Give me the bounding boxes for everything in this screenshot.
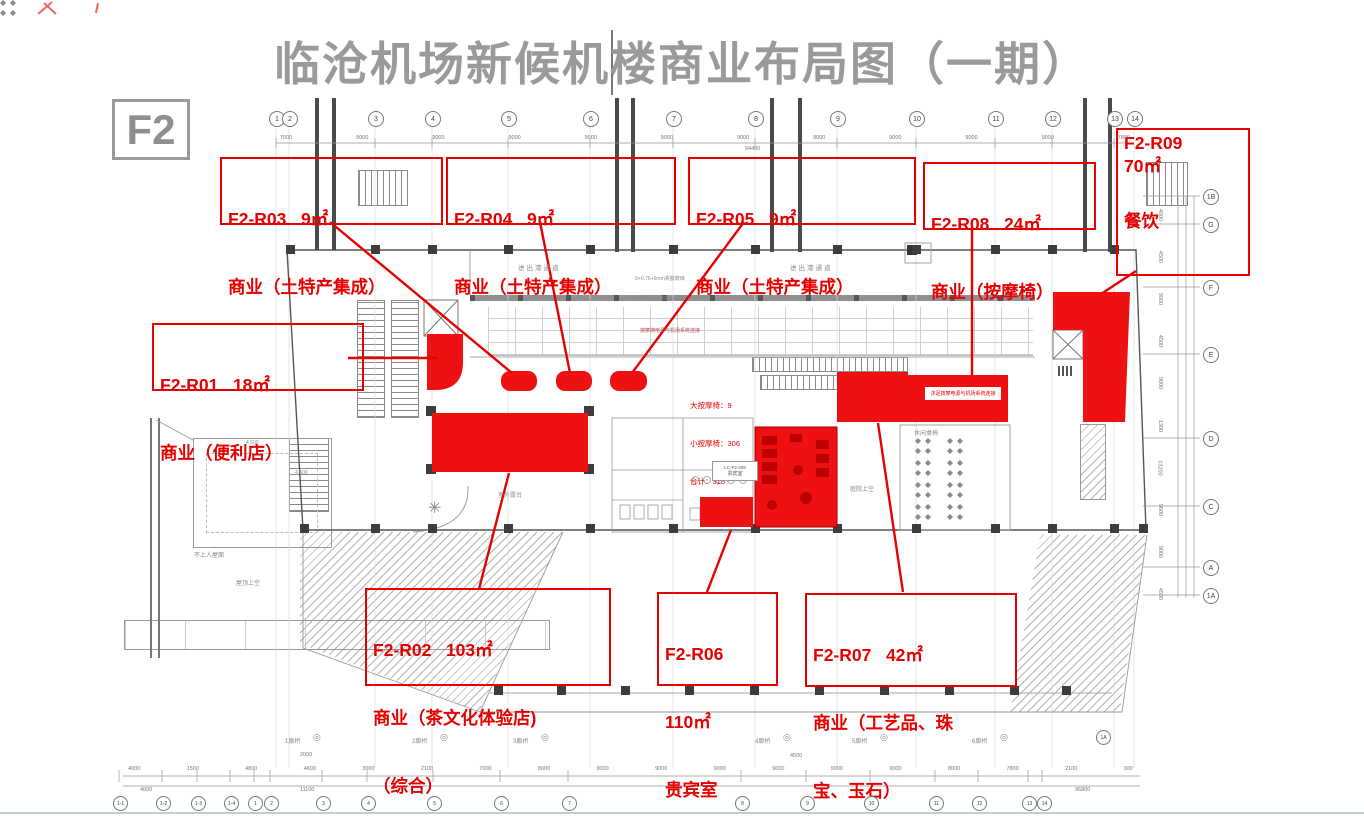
note-passage-left: 进出港通道 <box>518 262 561 272</box>
label-f2-r03: F2-R03 9㎡ 商业（土特产集成） <box>220 157 443 225</box>
dim-value: 9000 <box>1157 293 1163 305</box>
grid-bubble-top: 13 <box>1107 111 1123 127</box>
label-line: 商业（按摩椅） <box>931 281 1088 304</box>
vip-room-tag: LC-F2-409 贵宾室 <box>712 461 758 481</box>
floor-plan-page: 临沧机场新候机楼商业布局图（一期） F2 F2-R03 9㎡ 商业（土特产集成）… <box>0 0 1364 817</box>
note-line: 沐足按摩电源与机场系统连接 <box>930 390 995 397</box>
dim-value: 13200 <box>1157 460 1163 475</box>
grid-bubble-right: 1A <box>1203 588 1219 604</box>
grid-bubble-bottom: 5 <box>427 796 442 811</box>
grid-bubble-bottom: 2 <box>264 796 279 811</box>
dim-value: 4800 <box>304 766 316 772</box>
bottom-dimension-sub: 4000 <box>140 787 152 793</box>
grid-bubble-top: 11 <box>988 111 1004 127</box>
stat-line: 大按摩椅：9 <box>690 400 740 413</box>
dim-value: 8000 <box>538 766 550 772</box>
dim-value: 9000 <box>737 135 749 141</box>
dim-value: 9000 <box>714 766 726 772</box>
top-dimension-row: 7000 8000 9000 9000 9000 9000 9000 9000 … <box>280 135 1130 141</box>
note-power: 按摩椅电源与机场系统连接 <box>640 327 700 334</box>
info-kiosk <box>907 245 917 255</box>
dim-value: 7800 <box>1118 135 1130 141</box>
grid-bubble-top: 14 <box>1127 111 1143 127</box>
dim-value: 9000 <box>1042 135 1054 141</box>
region-f2-r04 <box>556 371 592 391</box>
dim-value: 9000 <box>508 135 520 141</box>
bridge-target-icon: ◎ <box>783 732 791 743</box>
label-line: 商业（土特产集成） <box>696 276 908 299</box>
dim-value: 8000 <box>948 766 960 772</box>
grid-bubble-bottom: 1 <box>248 796 263 811</box>
top-dimension-total: 94400 <box>745 146 760 152</box>
stat-line: 小按摩椅：306 <box>690 438 740 451</box>
note-line: 平钢化至3000mm高 <box>600 296 720 303</box>
dim-value: 7800 <box>1006 766 1018 772</box>
dim-value: 1500 <box>187 766 199 772</box>
label-line: F2-R07 42㎡ <box>813 644 1009 667</box>
bridge-label: 6廊桥 <box>972 736 987 745</box>
dim-value: 4500 <box>1157 335 1163 347</box>
bridge-dim: 4500 <box>790 753 802 759</box>
note-line: 6+0.76+6mm夹胶玻璃 <box>600 276 720 283</box>
dim-value: 4800 <box>245 766 257 772</box>
grid-bubble-right: E <box>1203 347 1219 363</box>
grid-bubble-right: C <box>1203 499 1219 515</box>
page-title: 临沧机场新候机楼商业布局图（一期） <box>0 28 1364 94</box>
grid-bubble-bottom: 12 <box>972 796 987 811</box>
label-f2-r07: F2-R07 42㎡ 商业（工艺品、珠 宝、玉石） <box>805 593 1017 687</box>
bridge-target-icon: ◎ <box>880 732 888 743</box>
label-line: F2-R05 9㎡ <box>696 208 908 231</box>
dim-value: 9000 <box>432 135 444 141</box>
corner-red-marks <box>38 2 98 14</box>
label-f2-r06: F2-R06 110㎡ 贵宾室 <box>657 592 778 686</box>
grid-bubble-right: 1B <box>1203 189 1219 205</box>
hatch-area-bottom-right <box>1010 535 1147 712</box>
grid-bubble-top: 4 <box>425 111 441 127</box>
grid-bubble-bottom: 9 <box>800 796 815 811</box>
level-mark: 4.500 <box>295 470 308 476</box>
region-f2-r02 <box>432 413 588 472</box>
bridge-dim: 2000 <box>300 752 312 758</box>
dim-value: 9000 <box>1157 546 1163 558</box>
foot-massage-note-box: 沐足按摩电源与机场系统连接 <box>925 387 1001 400</box>
dim-value: 2100 <box>421 766 433 772</box>
region-f2-r06 <box>755 427 837 527</box>
label-line: F2-R02 103㎡ <box>373 639 603 662</box>
expansion-wall <box>150 418 160 658</box>
grid-bubble-bottom: 10 <box>864 796 879 811</box>
label-line: 商业（茶文化体验店) <box>373 707 603 730</box>
note-no-access-roof: 不上人屋面 <box>194 550 224 559</box>
dim-value: 1300 <box>1157 419 1163 431</box>
grid-bubble-bottom: 1-3 <box>191 796 206 811</box>
dim-value: 4000 <box>128 766 140 772</box>
grid-bubble-top: 6 <box>583 111 599 127</box>
grid-bubble-top: 2 <box>282 111 298 127</box>
grid-bubble-bottom: 4 <box>361 796 376 811</box>
bridge-label: 1廊桥 <box>285 736 300 745</box>
dim-value: 2100 <box>1065 766 1077 772</box>
grid-bubble-top: 9 <box>830 111 846 127</box>
label-line: F2-R03 9㎡ <box>228 208 435 231</box>
label-line: （综合） <box>373 775 603 798</box>
grid-bubble-right: D <box>1203 431 1219 447</box>
label-f2-r08: F2-R08 24㎡ 商业（按摩椅） <box>923 162 1096 230</box>
label-line: 商业（土特产集成） <box>228 276 435 299</box>
grid-bubble-top: 10 <box>909 111 925 127</box>
label-f2-r04: F2-R04 9㎡ 商业（土特产集成） <box>446 157 676 225</box>
grid-bubble-top: 12 <box>1045 111 1061 127</box>
bottom-dimension-sub: 11100 <box>300 787 314 793</box>
grid-bubble-bottom: 1-2 <box>156 796 171 811</box>
label-line: 110㎡ <box>665 711 770 734</box>
grid-bubble-right: F <box>1203 280 1219 296</box>
dim-value: 9000 <box>597 766 609 772</box>
hatch-strip-right <box>1080 424 1106 500</box>
dim-value: 9000 <box>813 135 825 141</box>
label-line: F2-R04 9㎡ <box>454 208 668 231</box>
note-outdoor-terrace: 室外露台 <box>498 490 522 499</box>
dim-value: 9000 <box>772 766 784 772</box>
grid-bubble-right: A <box>1203 560 1219 576</box>
label-line: 贵宾室 <box>665 779 770 802</box>
dim-value: 9000 <box>889 766 901 772</box>
dim-value: 9000 <box>655 766 667 772</box>
grid-bubble-top: 3 <box>368 111 384 127</box>
label-line: F2-R09 <box>1124 132 1182 155</box>
label-f2-r05: F2-R05 9㎡ 商业（土特产集成） <box>688 157 916 225</box>
bottom-dimension-total: 96800 <box>1075 787 1090 793</box>
dim-value: 4500 <box>1157 588 1163 600</box>
dim-value: 9000 <box>831 766 843 772</box>
dim-value: 4500 <box>1157 251 1163 263</box>
dim-value: 3000 <box>362 766 374 772</box>
dim-value: 9000 <box>889 135 901 141</box>
escalator <box>752 357 908 372</box>
label-f2-r01: F2-R01 18㎡ 商业（便利店） <box>152 323 364 391</box>
note-courtyard-void: 庭院上空 <box>850 484 874 493</box>
floor-label: F2 <box>112 99 190 160</box>
massage-chair-stats: 大按摩椅：9 小按摩椅：306 合计：315 <box>690 374 740 514</box>
bridge-target-icon: ◎ <box>313 732 321 743</box>
dim-value: 9000 <box>1157 377 1163 389</box>
bridge-target-icon: ◎ <box>1000 732 1008 743</box>
grid-bubble-bottom: 14 <box>1037 796 1052 811</box>
grid-bubble-bottom: 11 <box>929 796 944 811</box>
grid-bubble-top: 7 <box>666 111 682 127</box>
label-line: 商业（工艺品、珠 <box>813 712 1009 735</box>
region-f2-r03 <box>501 371 537 391</box>
bottom-dimension-row: 4000 1500 4800 4800 3000 2100 7000 8000 … <box>128 766 1133 772</box>
elevator-keypad <box>1058 366 1074 376</box>
grid-bubble-bottom: 3 <box>316 796 331 811</box>
level-mark: 4.500 <box>246 440 259 446</box>
grid-bubble-bottom: 1-4 <box>224 796 239 811</box>
note-passage-right: 进出港通道 <box>790 262 833 272</box>
escalator <box>760 375 904 390</box>
bridge-target-icon: ◎ <box>440 732 448 743</box>
note-leisure-seating: 休闲桌椅 <box>914 428 938 437</box>
note-glass: 6+0.76+6mm夹胶玻璃 平钢化至3000mm高 <box>600 263 720 315</box>
table-chair-cluster <box>0 0 16 16</box>
plant-icon: ✳ <box>428 498 441 518</box>
grid-bubble-top: 5 <box>501 111 517 127</box>
dim-value: 9000 <box>585 135 597 141</box>
label-line: F2-R06 <box>665 643 770 666</box>
label-line: 70㎡ <box>1124 155 1161 178</box>
bridge-label: 5廊桥 <box>852 736 867 745</box>
grid-bubble-corner: 1A <box>1096 730 1111 745</box>
label-line: F2-R01 18㎡ <box>160 374 356 397</box>
grid-bubble-right: G <box>1203 217 1219 233</box>
label-f2-r09: F2-R09 70㎡ 餐饮 <box>1116 128 1250 276</box>
vip-furniture <box>762 434 829 510</box>
bridge-label: 4廊桥 <box>755 736 770 745</box>
grid-bubble-top: 8 <box>748 111 764 127</box>
page-bottom-border <box>0 812 1364 814</box>
dim-value: 300 <box>1124 766 1133 772</box>
dim-value: 9000 <box>965 135 977 141</box>
grid-bubble-bottom: 1-1 <box>113 796 128 811</box>
vip-room-name: 贵宾室 <box>727 470 742 477</box>
dim-value: 7000 <box>479 766 491 772</box>
note-roof-void: 屋顶上空 <box>236 578 260 587</box>
label-line: F2-R08 24㎡ <box>931 213 1088 236</box>
bridge-label: 3廊桥 <box>513 736 528 745</box>
grid-bubble-bottom: 6 <box>494 796 509 811</box>
bridge-label: 2廊桥 <box>412 736 427 745</box>
dim-value: 9600 <box>1157 504 1163 516</box>
label-f2-r02: F2-R02 103㎡ 商业（茶文化体验店) （综合） <box>365 588 611 686</box>
right-dimension-column: 4000 4500 9000 4500 9000 1300 13200 9600… <box>1152 212 1167 597</box>
dim-value: 4000 <box>1157 209 1163 221</box>
bridge-target-icon: ◎ <box>541 732 549 743</box>
grid-bubble-bottom: 8 <box>735 796 750 811</box>
dim-value: 7000 <box>280 135 292 141</box>
dim-value: 9000 <box>661 135 673 141</box>
grid-bubble-bottom: 7 <box>562 796 577 811</box>
region-f2-r05 <box>610 371 647 391</box>
grid-bubble-bottom: 13 <box>1022 796 1037 811</box>
dim-value: 8000 <box>356 135 368 141</box>
